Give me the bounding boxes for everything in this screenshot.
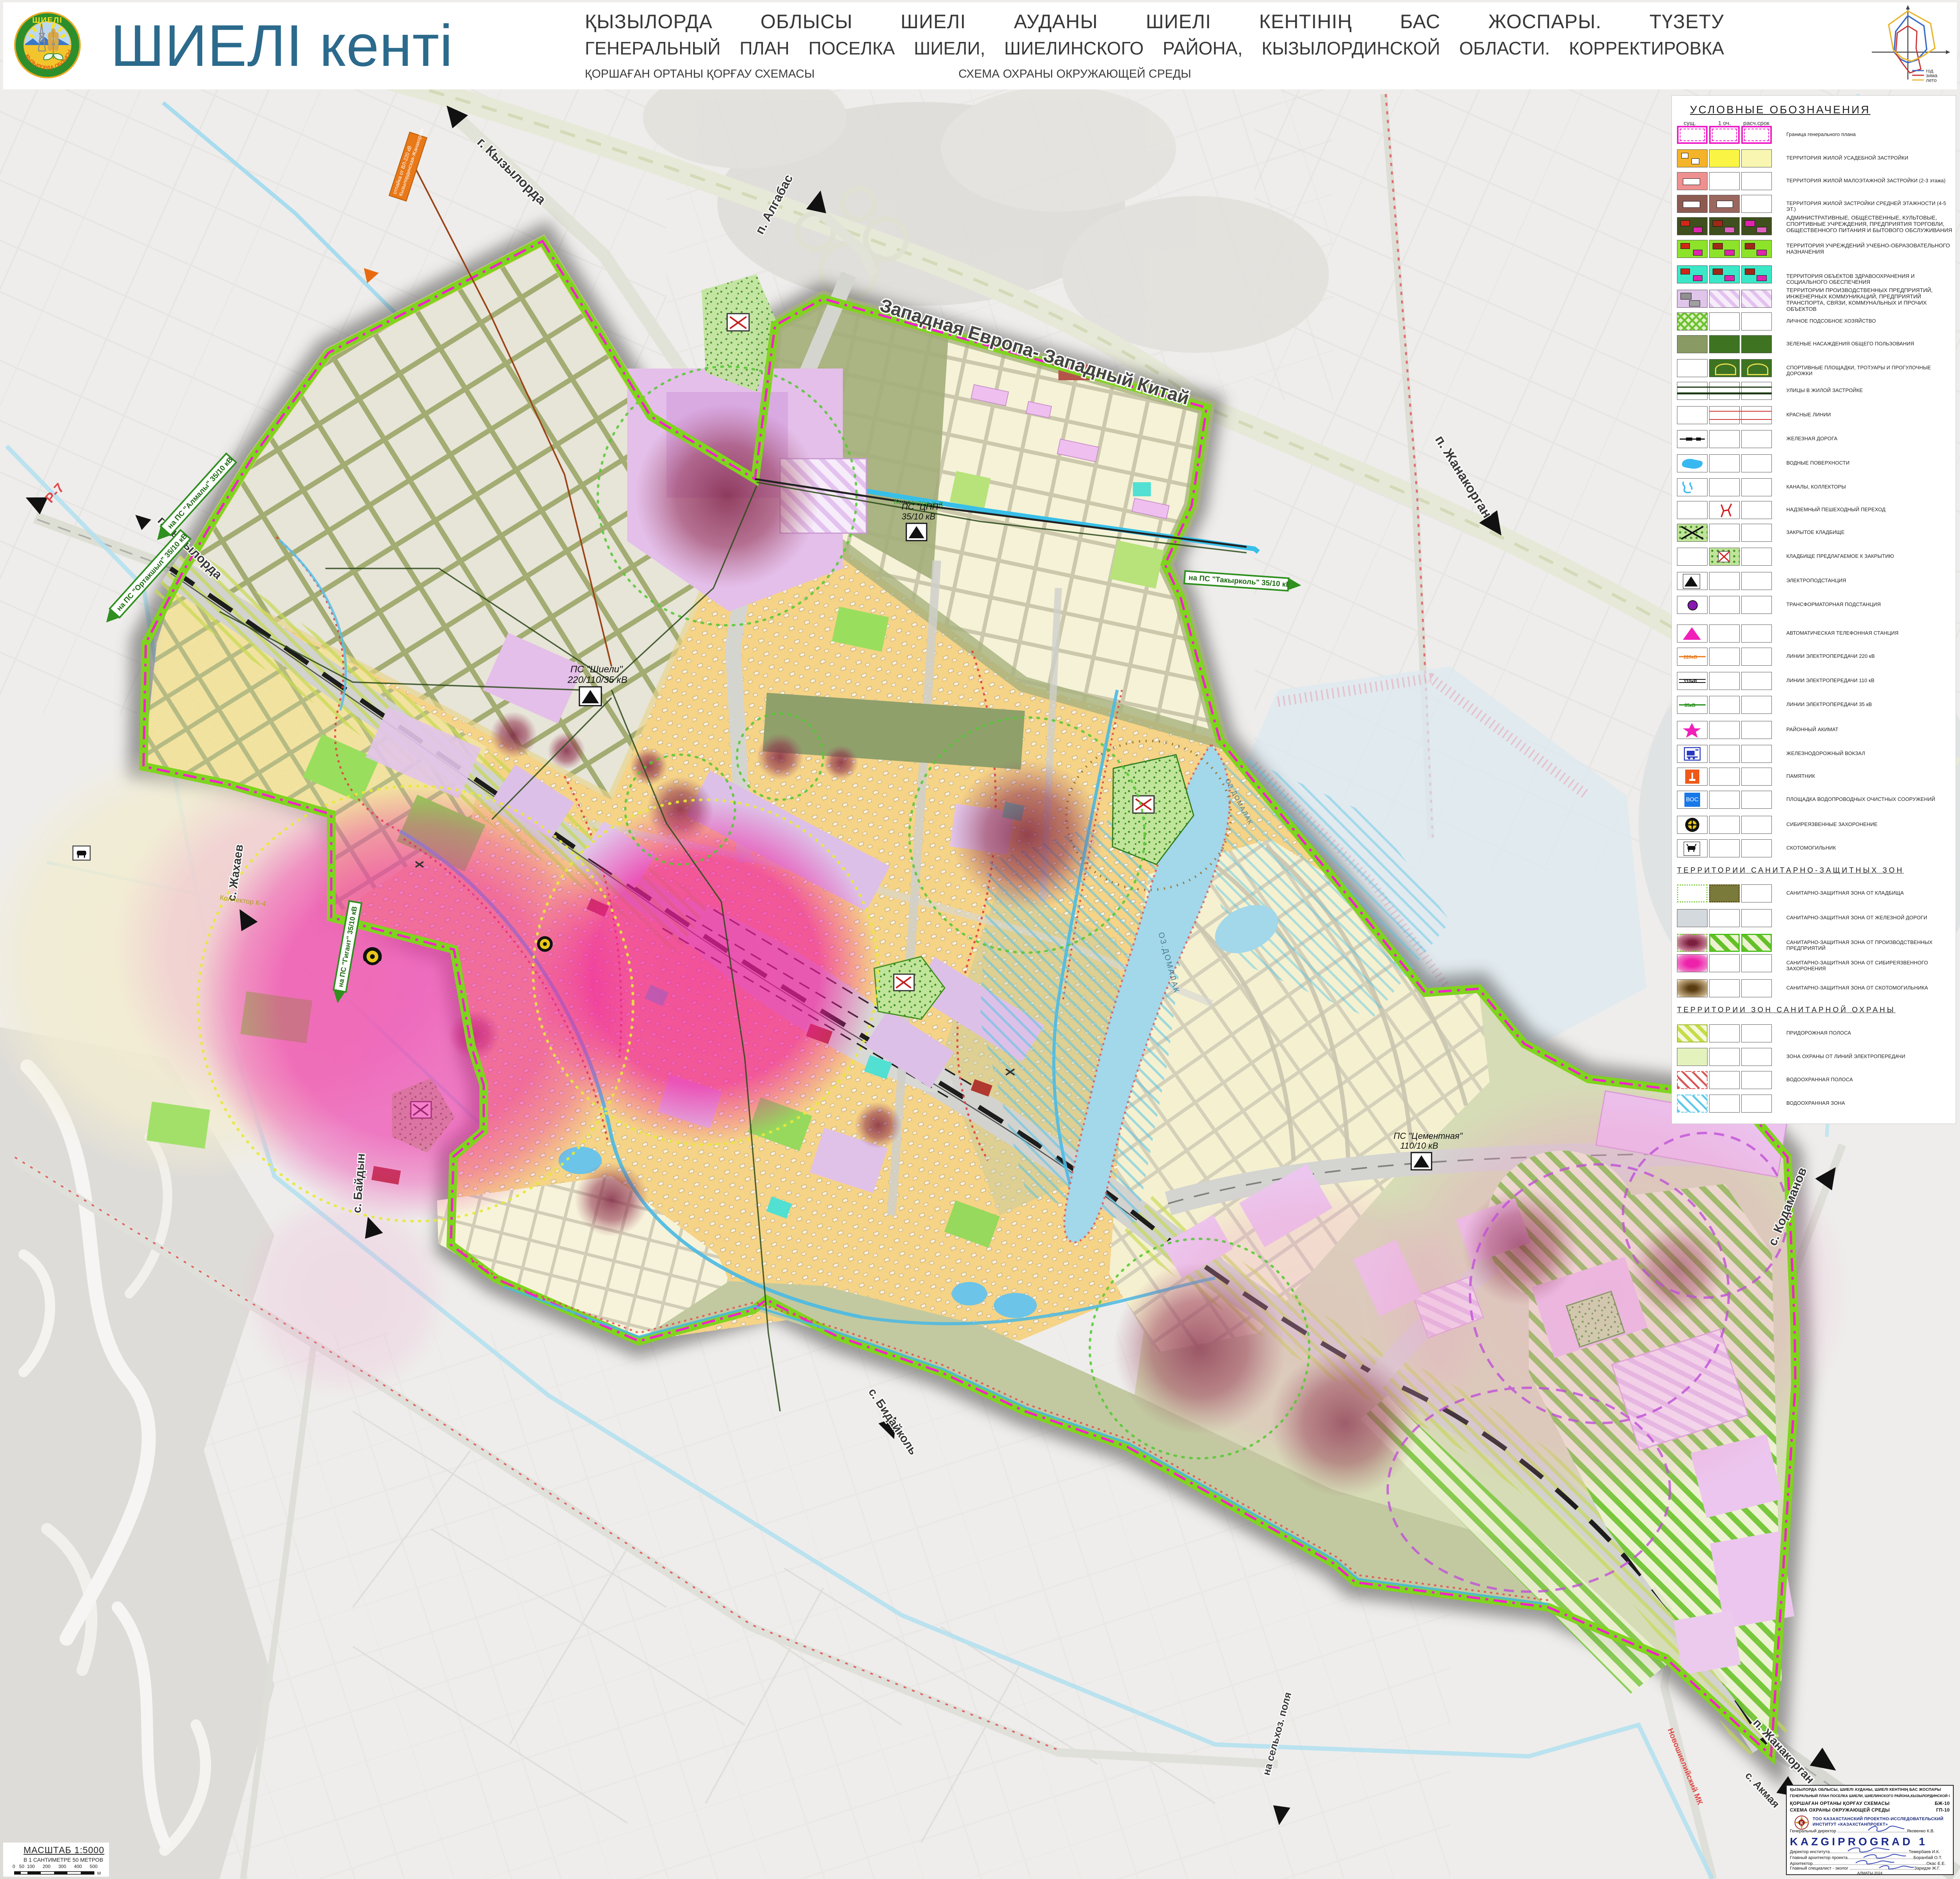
svg-text:35/10 кВ: 35/10 кВ <box>902 512 935 521</box>
svg-text:220/110/35 кВ: 220/110/35 кВ <box>567 675 627 685</box>
svg-text:ПС "ЦПП": ПС "ЦПП" <box>902 502 942 512</box>
svg-text:ПС "Шиели": ПС "Шиели" <box>570 664 623 675</box>
svg-text:35кВ: 35кВ <box>1684 703 1695 708</box>
svg-text:лето: лето <box>1926 77 1936 83</box>
svg-text:К: К <box>1800 1820 1803 1826</box>
svg-text:110/10 кВ: 110/10 кВ <box>1400 1141 1438 1151</box>
svg-text:ШИЕЛІ: ШИЕЛІ <box>32 16 62 25</box>
svg-text:220кВ: 220кВ <box>1684 654 1697 660</box>
svg-text:ПС "Цементная": ПС "Цементная" <box>1394 1131 1463 1141</box>
svg-text:М: М <box>97 1871 101 1875</box>
svg-text:110кВ: 110кВ <box>1684 679 1697 684</box>
